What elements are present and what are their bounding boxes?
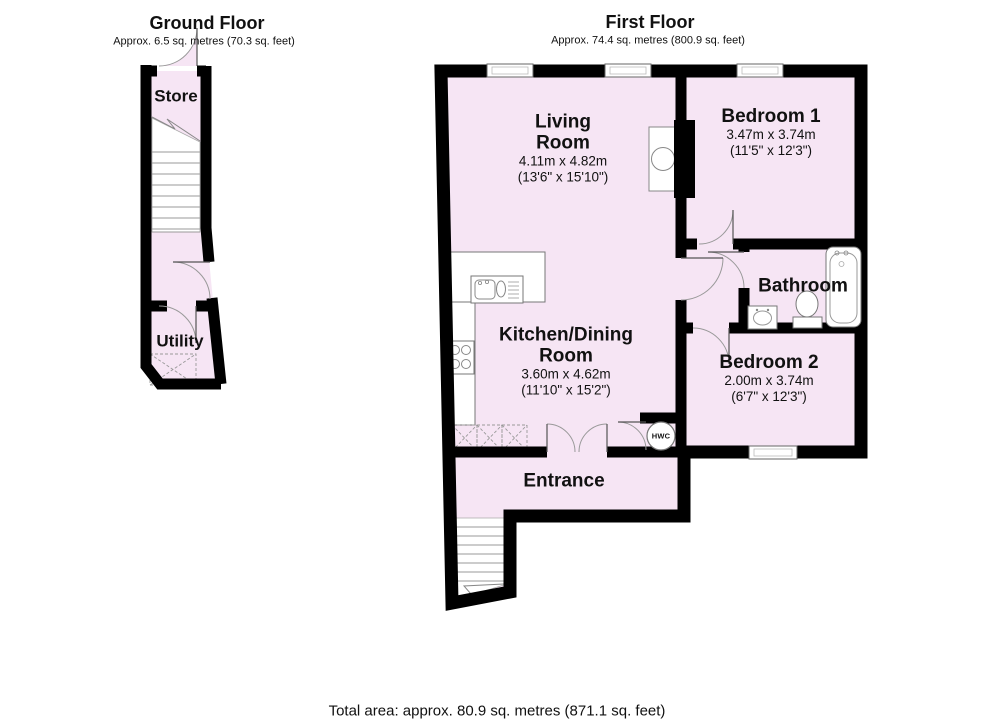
kitchen-name-line2: Room <box>499 346 633 367</box>
bedroom-1-name: Bedroom 1 <box>721 106 820 127</box>
living-room-label: Living Room 4.11m x 4.82m (13'6" x 15'10… <box>518 112 609 185</box>
total-area-label: Total area: approx. 80.9 sq. metres (871… <box>329 703 666 720</box>
first-floor-title-text: First Floor <box>606 12 695 32</box>
kitchen-name-line1: Kitchen/Dining <box>499 325 633 346</box>
store-label: Store <box>154 87 197 106</box>
living-room-dims-imperial: (13'6" x 15'10") <box>518 169 609 185</box>
ground-floor-area: Approx. 6.5 sq. metres (70.3 sq. feet) <box>113 36 295 49</box>
kitchen-dims-imperial: (11'10" x 15'2") <box>499 382 633 398</box>
bedroom-2-dims-imperial: (6'7" x 12'3") <box>719 389 818 405</box>
living-room-dims-metric: 4.11m x 4.82m <box>518 154 609 170</box>
living-room-name-line1: Living <box>518 112 609 133</box>
floorplan-page: Ground Floor Approx. 6.5 sq. metres (70.… <box>0 0 1000 727</box>
ground-floor-title: Ground Floor <box>150 13 265 33</box>
hwc-label: HWC <box>652 432 671 441</box>
bedroom-2-name: Bedroom 2 <box>719 352 818 373</box>
bathroom-label: Bathroom <box>758 276 848 297</box>
ground-floor-title-text: Ground Floor <box>150 13 265 33</box>
utility-label: Utility <box>156 332 203 351</box>
bedroom-2-dims-metric: 2.00m x 3.74m <box>719 373 818 389</box>
wash-basin <box>748 306 777 329</box>
bedroom-1-dims-imperial: (11'5" x 12'3") <box>721 143 820 159</box>
kitchen-dining-label: Kitchen/Dining Room 3.60m x 4.62m (11'10… <box>499 325 633 398</box>
bedroom-1-dims-metric: 3.47m x 3.74m <box>721 127 820 143</box>
entrance-label: Entrance <box>523 471 604 492</box>
chimney-breast <box>674 120 695 198</box>
living-room-name-line2: Room <box>518 133 609 154</box>
bedroom-1-window <box>737 64 783 77</box>
flue-circle <box>652 148 675 171</box>
first-floor-title: First Floor <box>606 12 695 32</box>
living-room-window-1 <box>487 64 533 77</box>
kitchen-dims-metric: 3.60m x 4.62m <box>499 367 633 383</box>
bedroom-2-window <box>749 446 797 459</box>
living-room-window-2 <box>605 64 651 77</box>
kitchen-sink <box>471 276 523 303</box>
bedroom-2-label: Bedroom 2 2.00m x 3.74m (6'7" x 12'3") <box>719 352 818 404</box>
first-floor-area: Approx. 74.4 sq. metres (800.9 sq. feet) <box>551 35 745 48</box>
bedroom-1-label: Bedroom 1 3.47m x 3.74m (11'5" x 12'3") <box>721 106 820 158</box>
